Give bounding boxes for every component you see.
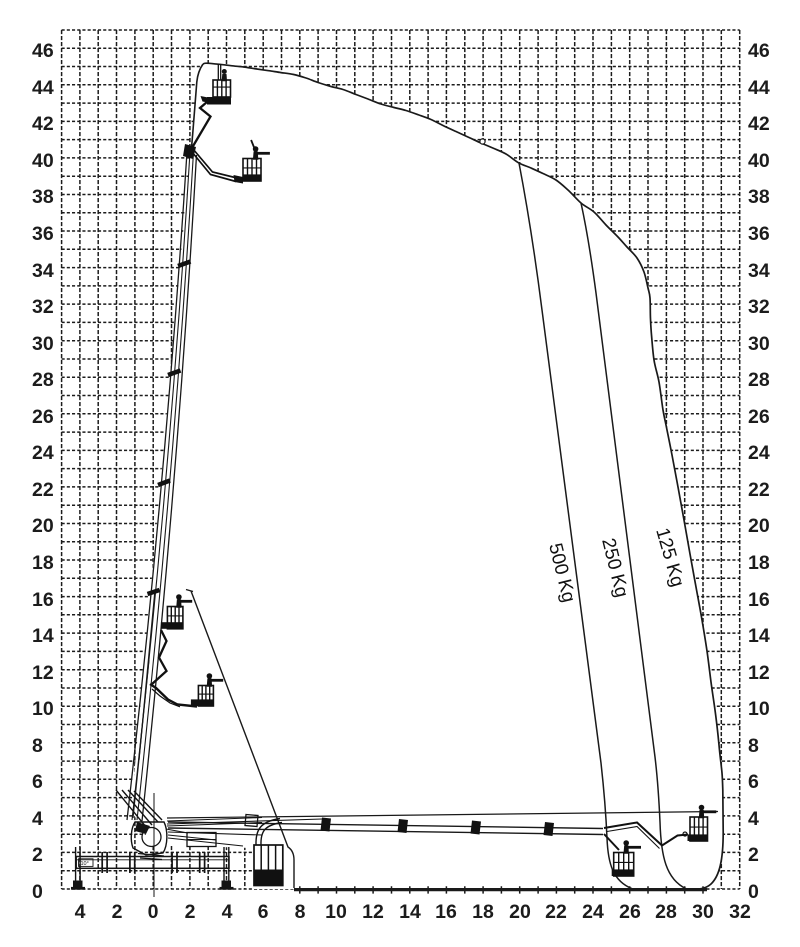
svg-text:0: 0 — [32, 881, 43, 903]
svg-text:38: 38 — [32, 186, 54, 208]
svg-text:18: 18 — [472, 901, 494, 923]
svg-text:40: 40 — [748, 150, 770, 172]
svg-text:12: 12 — [32, 662, 54, 684]
svg-text:12: 12 — [748, 662, 770, 684]
svg-text:10: 10 — [748, 698, 770, 720]
svg-text:0: 0 — [748, 881, 759, 903]
svg-text:10°: 10° — [81, 861, 89, 867]
svg-text:36: 36 — [748, 223, 770, 245]
svg-text:10: 10 — [325, 901, 347, 923]
svg-text:24: 24 — [32, 442, 54, 464]
svg-text:26: 26 — [748, 406, 770, 428]
svg-text:8: 8 — [748, 735, 759, 757]
svg-text:6: 6 — [32, 771, 43, 793]
svg-text:22: 22 — [545, 901, 567, 923]
svg-text:4: 4 — [748, 808, 759, 830]
svg-text:36: 36 — [32, 223, 54, 245]
svg-text:4: 4 — [75, 901, 86, 923]
svg-text:32: 32 — [748, 296, 770, 318]
svg-text:32: 32 — [32, 296, 54, 318]
svg-text:4: 4 — [222, 901, 233, 923]
svg-text:42: 42 — [32, 113, 54, 135]
svg-text:46: 46 — [32, 40, 54, 62]
svg-text:42: 42 — [748, 113, 770, 135]
svg-text:2: 2 — [112, 901, 123, 923]
svg-text:24: 24 — [748, 442, 770, 464]
svg-text:6: 6 — [748, 771, 759, 793]
svg-text:34: 34 — [32, 260, 54, 282]
svg-text:46: 46 — [748, 40, 770, 62]
svg-text:2: 2 — [748, 844, 759, 866]
svg-text:38: 38 — [748, 186, 770, 208]
svg-text:0: 0 — [148, 901, 159, 923]
svg-text:4: 4 — [32, 808, 43, 830]
svg-text:16: 16 — [32, 589, 54, 611]
svg-text:14: 14 — [399, 901, 421, 923]
svg-text:28: 28 — [748, 369, 770, 391]
svg-text:18: 18 — [748, 552, 770, 574]
svg-text:14: 14 — [748, 625, 770, 647]
svg-text:26: 26 — [619, 901, 641, 923]
svg-text:8: 8 — [295, 901, 306, 923]
svg-text:34: 34 — [748, 260, 770, 282]
svg-text:28: 28 — [32, 369, 54, 391]
svg-text:6: 6 — [258, 901, 269, 923]
svg-text:14: 14 — [32, 625, 54, 647]
svg-text:32: 32 — [729, 901, 751, 923]
svg-text:2: 2 — [185, 901, 196, 923]
svg-text:30: 30 — [32, 333, 54, 355]
svg-text:22: 22 — [748, 479, 770, 501]
svg-text:26: 26 — [32, 406, 54, 428]
svg-text:44: 44 — [748, 77, 770, 99]
svg-text:12: 12 — [362, 901, 384, 923]
svg-text:30: 30 — [692, 901, 714, 923]
svg-text:20: 20 — [32, 515, 54, 537]
svg-text:8: 8 — [32, 735, 43, 757]
svg-text:20: 20 — [509, 901, 531, 923]
svg-text:30: 30 — [748, 333, 770, 355]
svg-text:24: 24 — [582, 901, 604, 923]
svg-text:44: 44 — [32, 77, 54, 99]
svg-text:2: 2 — [32, 844, 43, 866]
svg-text:18: 18 — [32, 552, 54, 574]
svg-text:40: 40 — [32, 150, 54, 172]
svg-text:16: 16 — [748, 589, 770, 611]
svg-text:10: 10 — [32, 698, 54, 720]
svg-text:20: 20 — [748, 515, 770, 537]
svg-text:16: 16 — [435, 901, 457, 923]
svg-text:28: 28 — [655, 901, 677, 923]
svg-text:22: 22 — [32, 479, 54, 501]
